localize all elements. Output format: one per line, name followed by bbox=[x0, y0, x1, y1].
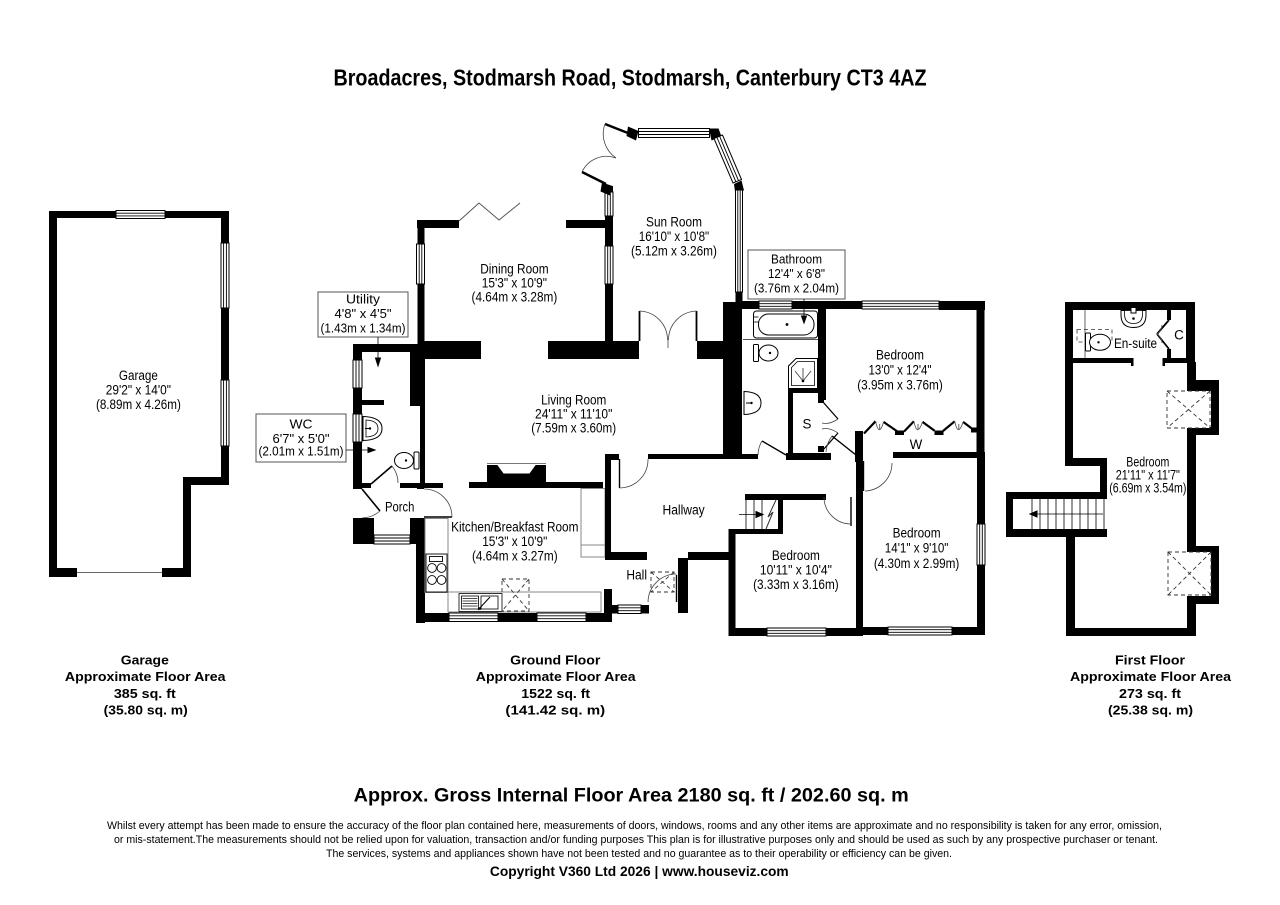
svg-text:Ground Floor: Ground Floor bbox=[510, 653, 600, 668]
svg-text:WC: WC bbox=[290, 418, 313, 432]
svg-text:Bedroom: Bedroom bbox=[876, 348, 924, 363]
svg-text:(8.89m x 4.26m): (8.89m x 4.26m) bbox=[96, 397, 181, 412]
svg-text:Approximate Floor Area: Approximate Floor Area bbox=[65, 669, 227, 684]
svg-text:Porch: Porch bbox=[385, 499, 414, 514]
svg-text:Sun Room: Sun Room bbox=[646, 215, 702, 230]
svg-text:Whilst every attempt has been: Whilst every attempt has been made to en… bbox=[107, 820, 1162, 832]
svg-text:En-suite: En-suite bbox=[1114, 336, 1157, 351]
svg-text:(5.12m x 3.26m): (5.12m x 3.26m) bbox=[631, 244, 717, 259]
svg-text:10'11" x 10'4": 10'11" x 10'4" bbox=[760, 562, 832, 577]
svg-text:(4.64m x 3.28m): (4.64m x 3.28m) bbox=[472, 290, 558, 305]
svg-text:Approx. Gross Internal Floor A: Approx. Gross Internal Floor Area 2180 s… bbox=[354, 786, 909, 807]
svg-text:Hall: Hall bbox=[626, 568, 647, 583]
svg-text:(141.42 sq. m): (141.42 sq. m) bbox=[505, 703, 605, 718]
svg-text:Approximate Floor Area: Approximate Floor Area bbox=[476, 669, 637, 684]
svg-text:4'8" x 4'5": 4'8" x 4'5" bbox=[335, 307, 392, 321]
svg-text:29'2" x 14'0": 29'2" x 14'0" bbox=[106, 383, 171, 398]
svg-text:First Floor: First Floor bbox=[1115, 653, 1185, 668]
svg-text:Living Room: Living Room bbox=[541, 393, 606, 408]
svg-text:(3.76m x 2.04m): (3.76m x 2.04m) bbox=[754, 282, 839, 296]
svg-text:(4.30m x 2.99m): (4.30m x 2.99m) bbox=[874, 556, 960, 571]
svg-text:Utility: Utility bbox=[346, 293, 381, 307]
svg-text:Hallway: Hallway bbox=[663, 503, 705, 518]
svg-text:Copyright V360 Ltd 2026 | www.: Copyright V360 Ltd 2026 | www.houseviz.c… bbox=[490, 863, 789, 879]
svg-text:W: W bbox=[910, 437, 923, 452]
svg-text:Bedroom: Bedroom bbox=[893, 525, 941, 540]
svg-text:12'4" x 6'8": 12'4" x 6'8" bbox=[768, 267, 825, 281]
svg-text:Bathroom: Bathroom bbox=[771, 253, 822, 267]
svg-text:Garage: Garage bbox=[119, 368, 158, 383]
svg-text:15'3" x 10'9": 15'3" x 10'9" bbox=[482, 534, 547, 549]
svg-text:385 sq. ft: 385 sq. ft bbox=[114, 686, 177, 701]
svg-text:S: S bbox=[803, 417, 812, 432]
svg-text:16'10" x 10'8": 16'10" x 10'8" bbox=[639, 229, 710, 244]
svg-text:or mis-statement.The measureme: or mis-statement.The measurements should… bbox=[114, 834, 1158, 846]
svg-text:14'1" x 9'10": 14'1" x 9'10" bbox=[885, 541, 949, 556]
svg-text:Broadacres, Stodmarsh Road, St: Broadacres, Stodmarsh Road, Stodmarsh, C… bbox=[334, 65, 927, 91]
svg-text:Approximate Floor Area: Approximate Floor Area bbox=[1070, 669, 1232, 684]
svg-text:Dining Room: Dining Room bbox=[480, 261, 548, 276]
svg-text:C: C bbox=[1174, 328, 1184, 343]
svg-text:(6.69m x 3.54m): (6.69m x 3.54m) bbox=[1109, 481, 1186, 496]
svg-text:(25.38 sq. m): (25.38 sq. m) bbox=[1108, 703, 1193, 718]
svg-text:Bedroom: Bedroom bbox=[772, 548, 820, 563]
svg-text:(3.95m x 3.76m): (3.95m x 3.76m) bbox=[857, 377, 943, 392]
svg-text:(3.33m x 3.16m): (3.33m x 3.16m) bbox=[753, 577, 839, 592]
svg-text:(2.01m x 1.51m): (2.01m x 1.51m) bbox=[259, 445, 344, 459]
svg-text:13'0" x 12'4": 13'0" x 12'4" bbox=[869, 362, 932, 377]
svg-text:Kitchen/Breakfast Room: Kitchen/Breakfast Room bbox=[451, 520, 578, 535]
svg-text:The services, systems and appl: The services, systems and appliances sho… bbox=[326, 848, 952, 860]
svg-text:15'3" x 10'9": 15'3" x 10'9" bbox=[482, 275, 547, 290]
svg-text:1522 sq. ft: 1522 sq. ft bbox=[521, 686, 591, 701]
svg-text:(35.80 sq. m): (35.80 sq. m) bbox=[104, 703, 188, 718]
svg-text:Garage: Garage bbox=[121, 653, 169, 668]
svg-text:(4.64m x 3.27m): (4.64m x 3.27m) bbox=[472, 549, 558, 564]
svg-text:(7.59m x 3.60m): (7.59m x 3.60m) bbox=[531, 421, 616, 436]
svg-text:273 sq. ft: 273 sq. ft bbox=[1119, 686, 1182, 701]
svg-text:(1.43m x 1.34m): (1.43m x 1.34m) bbox=[321, 322, 406, 336]
svg-text:24'11" x 11'10": 24'11" x 11'10" bbox=[535, 407, 613, 422]
